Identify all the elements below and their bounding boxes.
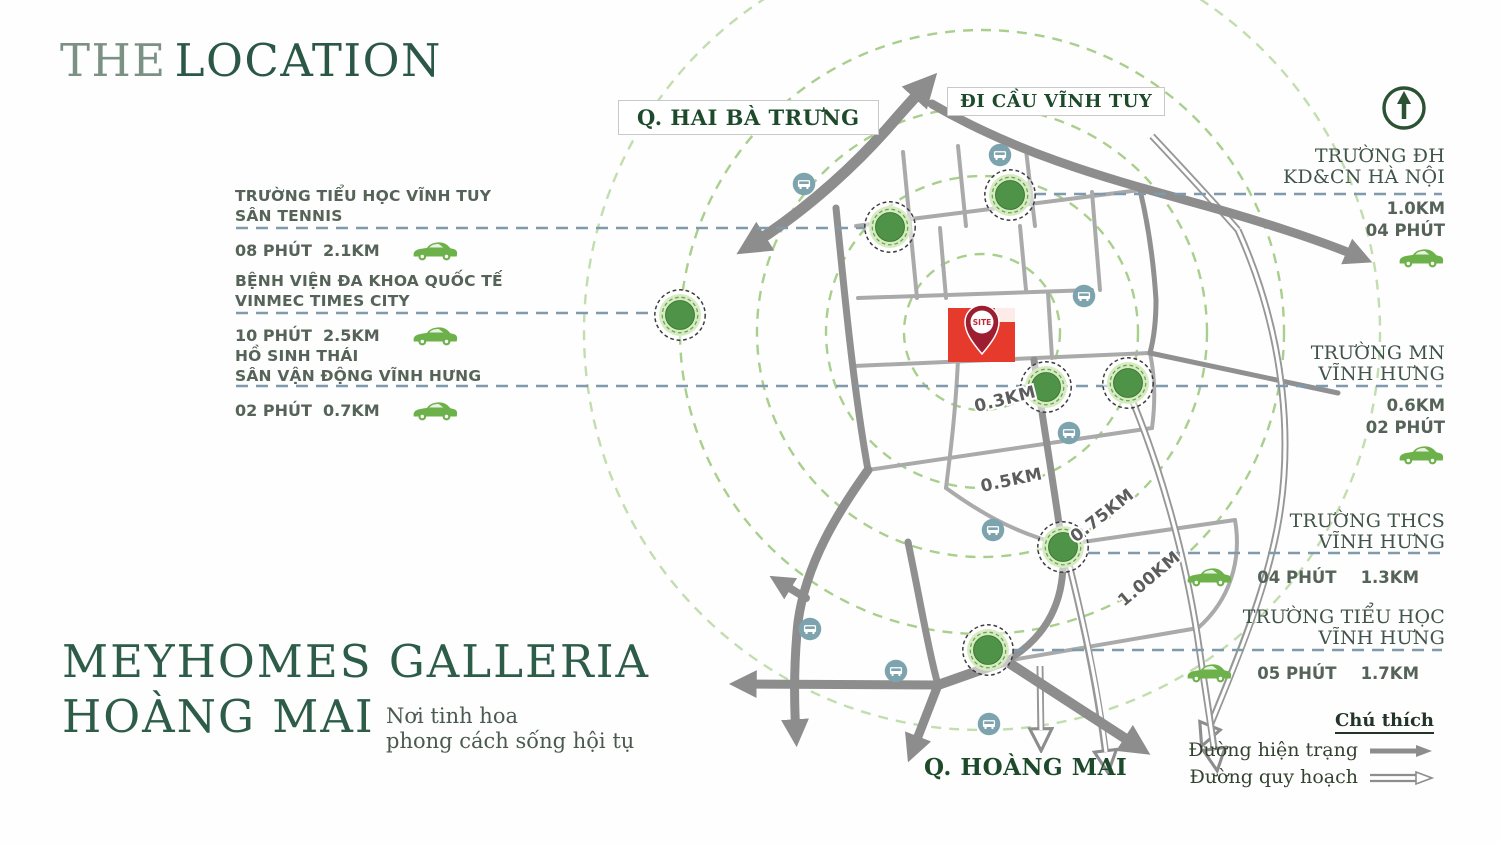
legend-label: Đường hiện trạng (1188, 740, 1358, 761)
car-icon (1395, 443, 1445, 467)
poi-distance: 0.6KM (1145, 396, 1445, 415)
legend-label: Đường quy hoạch (1189, 767, 1358, 788)
bus-stop-icon (1073, 285, 1096, 308)
poi-name: BỆNH VIỆN ĐA KHOA QUỐC TẾ VINMEC TIMES C… (235, 271, 565, 311)
poi-name: TRƯỜNG THCS VĨNH HƯNG (1145, 511, 1445, 553)
car-icon (1183, 565, 1233, 589)
legend-item: Đường hiện trạng (1188, 740, 1434, 761)
poi-distance: 1.0KM (1145, 199, 1445, 218)
location-infographic: SITE 0.3KM 0.5KM 0.75KM 1.00KM THELOCATI… (0, 0, 1500, 844)
poi-circle (655, 290, 705, 340)
poi-time: 02 PHÚT (235, 401, 323, 420)
poi-item: TRƯỜNG TIỂU HỌC VĨNH HƯNG 05 PHÚT 1.7KM (1145, 607, 1445, 685)
poi-time: 02 PHÚT (1145, 418, 1445, 437)
car-icon (409, 399, 459, 423)
poi-item: TRƯỜNG THCS VĨNH HƯNG 04 PHÚT 1.3KM (1145, 511, 1445, 589)
poi-distance: 1.7KM (1361, 664, 1419, 683)
double-road-arrow-icon (1368, 770, 1434, 786)
brand-tagline: Nơi tinh hoa phong cách sống hội tụ (386, 704, 634, 754)
car-icon (1395, 246, 1445, 270)
bus-stop-icon (885, 660, 908, 683)
solid-road-arrow-icon (1368, 743, 1434, 759)
bus-stop-icon (799, 618, 822, 641)
poi-distance: 1.3KM (1361, 568, 1419, 587)
bus-stop-icon (982, 519, 1005, 542)
poi-item: TRƯỜNG TIỂU HỌC VĨNH TUY SÂN TENNIS 08 P… (235, 186, 565, 263)
page-title: THELOCATION (60, 34, 442, 87)
north-compass-icon (1380, 84, 1430, 134)
poi-name: TRƯỜNG TIỂU HỌC VĨNH TUY SÂN TENNIS (235, 186, 565, 226)
site-marker: SITE (948, 305, 1015, 362)
poi-distance: 2.5KM (323, 326, 409, 345)
bus-stop-icon (793, 173, 816, 196)
poi-name: HỒ SINH THÁI SÂN VẬN ĐỘNG VĨNH HƯNG (235, 346, 565, 386)
poi-time: 04 PHÚT (1145, 221, 1445, 240)
car-icon (409, 239, 459, 263)
page-title-location: LOCATION (175, 34, 442, 87)
district-label-di-cau-vinh-tuy: ĐI CẦU VĨNH TUY (947, 87, 1165, 116)
poi-name: TRƯỜNG ĐH KD&CN HÀ NỘI (1145, 146, 1445, 188)
poi-circle (985, 170, 1035, 220)
poi-circle (963, 625, 1013, 675)
map-legend: Chú thích Đường hiện trạng Đường quy hoạ… (1188, 710, 1434, 788)
poi-distance: 2.1KM (323, 241, 409, 260)
ring-label: 0.3KM (972, 382, 1038, 417)
legend-title: Chú thích (1335, 710, 1434, 734)
bus-stop-icon (1058, 422, 1081, 445)
poi-item: TRƯỜNG ĐH KD&CN HÀ NỘI 1.0KM 04 PHÚT (1145, 146, 1445, 270)
legend-item: Đường quy hoạch (1188, 767, 1434, 788)
district-label-hoang-mai: Q. HOÀNG MAI (924, 754, 1127, 781)
district-label-hai-ba-trung: Q. HAI BÀ TRƯNG (618, 100, 879, 135)
poi-name: TRƯỜNG MN VĨNH HƯNG (1145, 343, 1445, 385)
poi-circle (865, 202, 915, 252)
poi-time: 05 PHÚT (1257, 664, 1336, 683)
poi-time: 10 PHÚT (235, 326, 323, 345)
poi-time: 04 PHÚT (1257, 568, 1336, 587)
poi-name: TRƯỜNG TIỂU HỌC VĨNH HƯNG (1145, 607, 1445, 649)
car-icon (409, 324, 459, 348)
site-label: SITE (973, 318, 991, 327)
brand-line1: MEYHOMES GALLERIA (62, 634, 650, 689)
poi-distance: 0.7KM (323, 401, 409, 420)
ring-label: 0.5KM (979, 464, 1045, 497)
poi-item: BỆNH VIỆN ĐA KHOA QUỐC TẾ VINMEC TIMES C… (235, 271, 565, 348)
page-title-the: THE (60, 34, 167, 87)
poi-item: HỒ SINH THÁI SÂN VẬN ĐỘNG VĨNH HƯNG 02 P… (235, 346, 565, 423)
bus-stop-icon (989, 144, 1012, 167)
poi-time: 08 PHÚT (235, 241, 323, 260)
car-icon (1183, 661, 1233, 685)
poi-item: TRƯỜNG MN VĨNH HƯNG 0.6KM 02 PHÚT (1145, 343, 1445, 467)
bus-stop-icon (978, 713, 1001, 736)
